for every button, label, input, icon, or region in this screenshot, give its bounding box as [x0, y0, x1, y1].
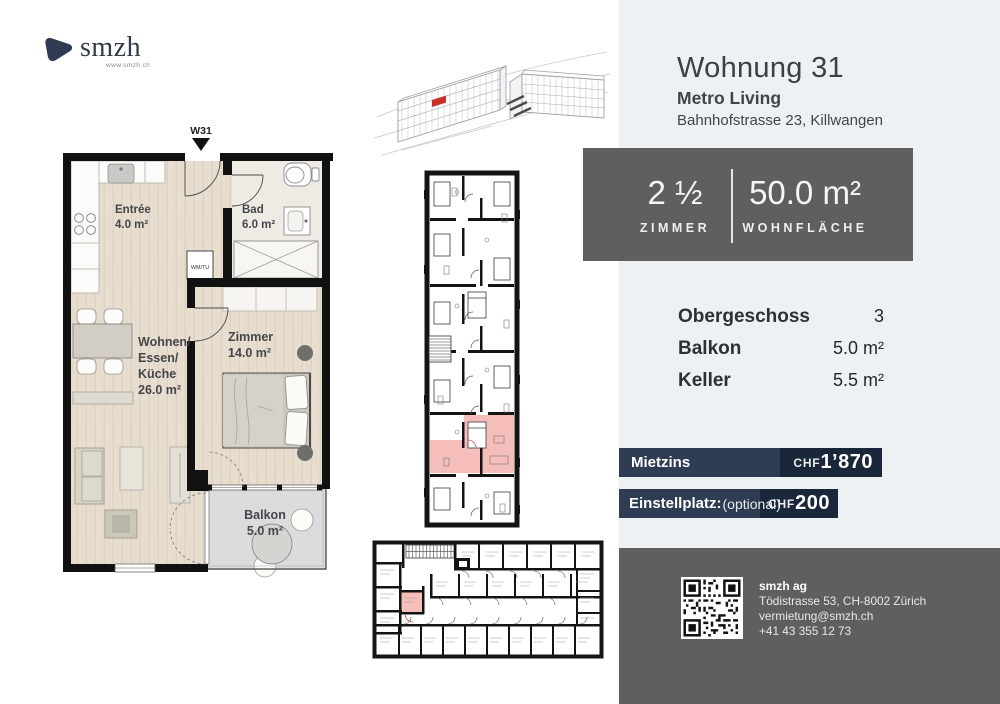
area-value: 50.0 m² — [749, 174, 861, 212]
detail-row-keller: Keller 5.5 m² — [678, 370, 884, 402]
parking-price-bar: Einstellplatz:(optional) CHF 200 — [619, 489, 838, 518]
side-table — [297, 345, 313, 361]
contact-footer: smzh ag Tödistrasse 53, CH-8002 Zürich v… — [619, 548, 1000, 704]
building-left — [398, 62, 506, 147]
side-table — [297, 445, 313, 461]
contact-address: Tödistrasse 53, CH-8002 Zürich — [759, 594, 989, 609]
logo-wordmark: smzh — [80, 32, 141, 64]
details-list: Obergeschoss 3 Balkon 5.0 m² Keller 5.5 … — [678, 306, 884, 402]
rooms-label: ZIMMER — [640, 221, 710, 235]
rent-amount: 1’870 — [820, 451, 873, 474]
contact-phone: +41 43 355 12 73 — [759, 624, 989, 639]
svg-text:26.0 m²: 26.0 m² — [138, 383, 181, 397]
rent-price-bar: Mietzins CHF 1’870 — [619, 448, 882, 477]
plate-staircase — [429, 336, 451, 362]
svg-text:5.0 m²: 5.0 m² — [247, 524, 283, 538]
floor-plate-plan — [424, 170, 520, 528]
room-wohnen: Wohnen/ — [138, 335, 191, 349]
shower — [234, 241, 318, 278]
detail-row-balkon: Balkon 5.0 m² — [678, 338, 884, 370]
apartment-floorplan: W31 — [60, 123, 336, 596]
svg-text:Essen/: Essen/ — [138, 351, 179, 365]
unit-marker-label: W31 — [190, 125, 212, 137]
flyer-page: smzh www.smzh.ch W31 — [0, 0, 1000, 704]
rooms-value: 2 ½ — [647, 174, 702, 212]
parking-label-section: Einstellplatz:(optional) — [619, 489, 760, 518]
room-zimmer: Zimmer — [228, 330, 273, 344]
basement-plan — [372, 540, 604, 660]
svg-text:6.0 m²: 6.0 m² — [242, 219, 275, 231]
project-name: Metro Living — [677, 88, 987, 109]
building-right — [510, 66, 604, 122]
area-stat: 50.0 m² WOHNFLÄCHE — [731, 148, 913, 261]
parking-amount: 200 — [795, 492, 830, 515]
room-entree: Entrée — [115, 204, 151, 216]
site-axonometric — [372, 22, 612, 158]
balcony-door-wall — [205, 491, 209, 564]
svg-text:4.0 m²: 4.0 m² — [115, 219, 148, 231]
down-triangle-icon — [192, 138, 210, 151]
rooms-stat: 2 ½ ZIMMER — [583, 148, 731, 261]
armchair — [105, 510, 137, 538]
sofa — [75, 448, 104, 504]
wardrobe — [223, 287, 317, 311]
contact-block: smzh ag Tödistrasse 53, CH-8002 Zürich v… — [759, 579, 989, 638]
faucet — [119, 167, 122, 170]
double-bed — [223, 373, 310, 448]
stats-box: 2 ½ ZIMMER 50.0 m² WOHNFLÄCHE — [583, 148, 913, 261]
room-bad: Bad — [242, 204, 264, 216]
smzh-logo-icon — [44, 36, 74, 66]
header-block: Wohnung 31 Metro Living Bahnhofstrasse 2… — [677, 52, 987, 129]
elevator — [459, 561, 467, 567]
qr-code — [681, 577, 743, 639]
coffee-table — [120, 447, 143, 490]
parking-currency: CHF — [768, 497, 795, 511]
sideboard — [73, 392, 133, 404]
page-title: Wohnung 31 — [677, 52, 987, 85]
basement-staircase — [406, 545, 454, 558]
logo-url: www.smzh.ch — [106, 62, 150, 69]
brand-logo: smzh www.smzh.ch — [44, 34, 204, 74]
washer-label: WM/TU — [191, 265, 209, 271]
window — [115, 564, 155, 572]
contact-email: vermietung@smzh.ch — [759, 609, 989, 624]
area-label: WOHNFLÄCHE — [742, 221, 867, 235]
project-address: Bahnhofstrasse 23, Killwangen — [677, 112, 987, 129]
svg-text:Küche: Küche — [138, 367, 176, 381]
contact-company: smzh ag — [759, 579, 989, 594]
washbasin — [284, 207, 310, 235]
rent-label-section: Mietzins — [619, 448, 780, 477]
room-balkon: Balkon — [244, 508, 286, 522]
rent-currency: CHF — [793, 456, 820, 470]
kitchen-sink — [108, 164, 134, 183]
detail-row-obergeschoss: Obergeschoss 3 — [678, 306, 884, 338]
svg-text:14.0 m²: 14.0 m² — [228, 346, 271, 360]
